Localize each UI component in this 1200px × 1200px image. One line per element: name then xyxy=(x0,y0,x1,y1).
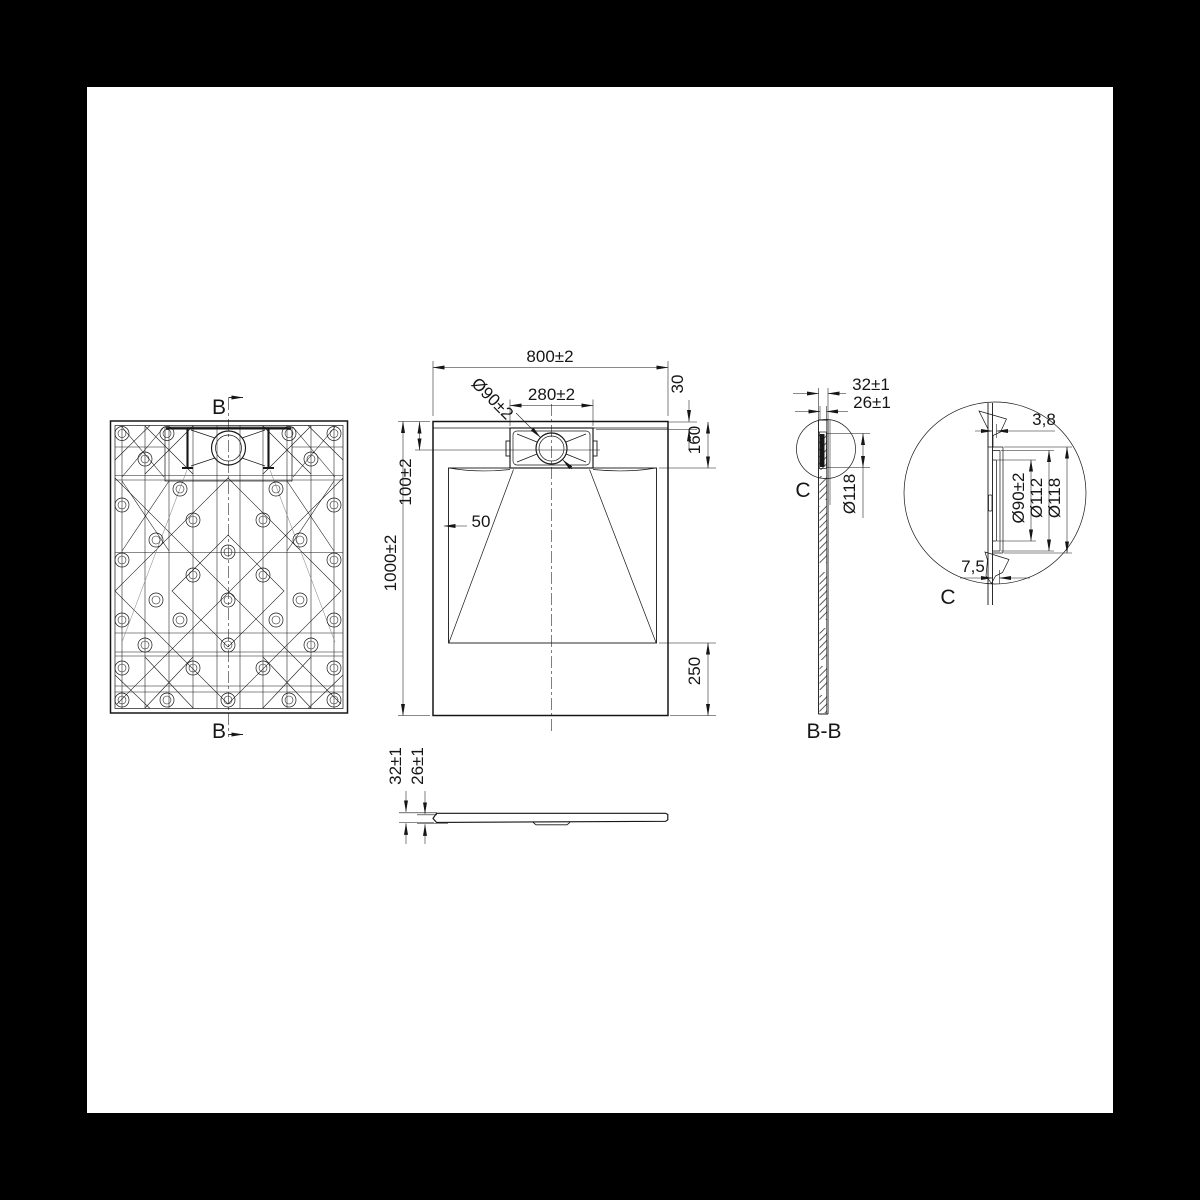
detail-title: C xyxy=(940,586,955,609)
dim-flat-end: 250 xyxy=(685,657,704,685)
detail-ref-label: C xyxy=(795,479,810,502)
dim-cover-width: 280±2 xyxy=(528,385,575,404)
dim-side-base-thickness: 26±1 xyxy=(408,747,427,785)
paper-sheet xyxy=(87,87,1113,1113)
section-title: B-B xyxy=(806,720,841,743)
cad-drawing: B B 800±2 xyxy=(0,0,1200,1200)
dim-section-total-thickness: 32±1 xyxy=(852,375,890,394)
dim-width: 800±2 xyxy=(526,347,573,366)
drawing-page: B B 800±2 xyxy=(0,0,1200,1200)
dim-section-base-thickness: 26±1 xyxy=(853,393,891,412)
dim-edge-gap: 30 xyxy=(668,375,687,394)
dim-center-offset: 100±2 xyxy=(396,458,415,505)
dim-detail-outer: Ø118 xyxy=(1045,478,1064,518)
dim-border: 50 xyxy=(472,512,491,531)
section-label-b-bottom: B xyxy=(212,720,226,743)
dim-section-flange: Ø118 xyxy=(840,474,859,514)
drain-section-bar xyxy=(820,434,825,467)
dim-detail-lip: 3,8 xyxy=(1032,410,1056,429)
dim-side-total-thickness: 32±1 xyxy=(386,747,405,785)
dim-recess-depth: 160 xyxy=(685,426,704,454)
section-label-b-top: B xyxy=(212,396,226,419)
dim-length: 1000±2 xyxy=(381,535,400,592)
dim-detail-mid: Ø112 xyxy=(1027,478,1046,518)
dim-detail-bore: Ø90±2 xyxy=(1009,473,1028,524)
dim-detail-inset: 7,5 xyxy=(961,557,985,576)
